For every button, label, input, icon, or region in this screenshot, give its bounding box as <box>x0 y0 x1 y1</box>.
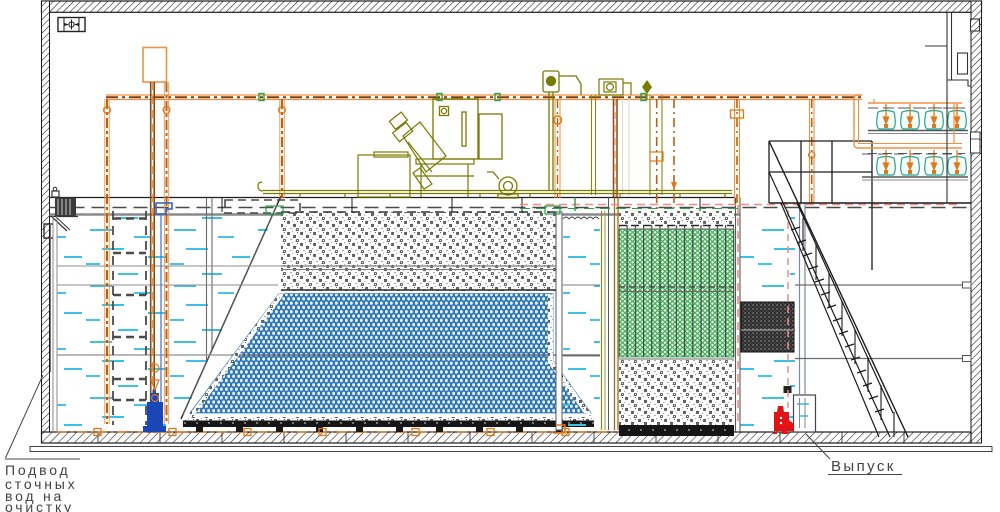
svg-text:очистку: очистку <box>5 499 74 512</box>
svg-text:Выпуск: Выпуск <box>831 458 896 475</box>
